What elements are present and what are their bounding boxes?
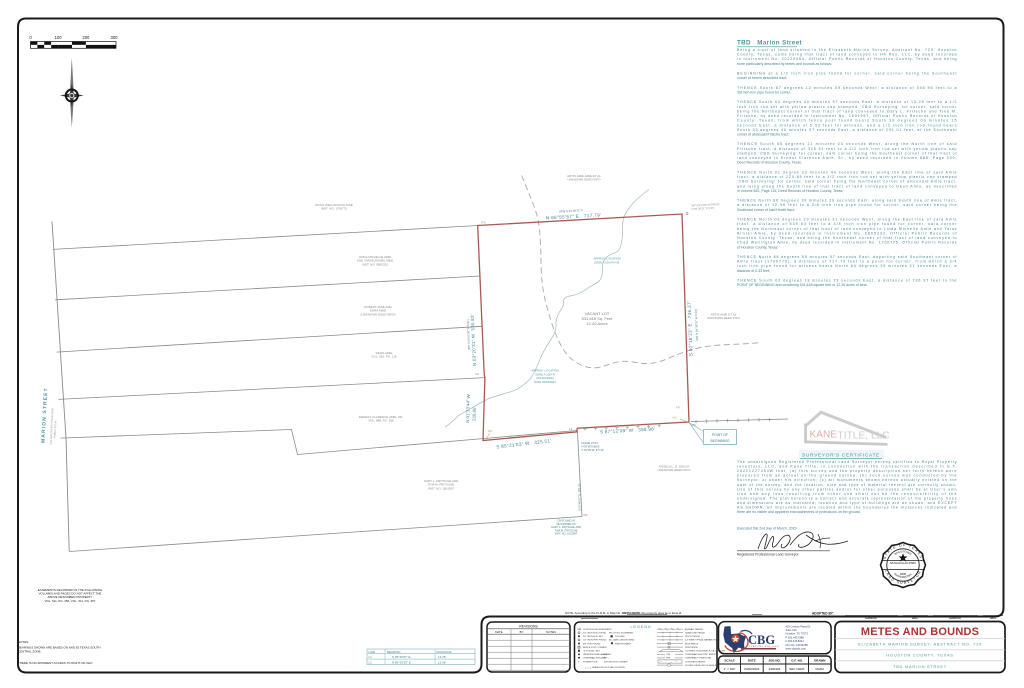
svg-text:BEGINNING at a 1/2 inch iron p: BEGINNING at a 1/2 inch iron pipe found … bbox=[737, 72, 957, 76]
svg-text:BEGINNING: BEGINNING bbox=[710, 439, 729, 443]
svg-text:NATHAN ALAN PARK: NATHAN ALAN PARK bbox=[890, 561, 917, 565]
svg-text:12.20 Acres: 12.20 Acres bbox=[586, 321, 607, 326]
svg-text:UNKNOWN DEED INFO: UNKNOWN DEED INFO bbox=[658, 468, 692, 472]
svg-text:in Volume 652, Page 116, Deed: in Volume 652, Page 116, Deed Records of… bbox=[737, 189, 843, 193]
svg-text:✕: ✕ bbox=[578, 660, 580, 663]
svg-text:A/C: A/C bbox=[488, 429, 493, 433]
svg-text:DATE: DATE bbox=[990, 617, 997, 620]
svg-text:Executed this 2nd day of March: Executed this 2nd day of March, 2023 bbox=[737, 527, 797, 531]
svg-text:OVERHEAD ELECTRIC SERVICE: OVERHEAD ELECTRIC SERVICE bbox=[685, 653, 719, 656]
svg-text:POINT OF: POINT OF bbox=[712, 433, 728, 437]
svg-text:VOL. 652, PG. 116: VOL. 652, PG. 116 bbox=[371, 355, 396, 359]
svg-text:F 281.443.8224: F 281.443.8224 bbox=[786, 639, 805, 643]
svg-text:in Instrument No. 20220664, Of: in Instrument No. 20220664, Official Pub… bbox=[737, 57, 957, 61]
svg-text:CENTRAL ZONE.: CENTRAL ZONE. bbox=[18, 650, 42, 654]
svg-text:Deed Records of Houston County: Deed Records of Houston County, Texas; bbox=[737, 161, 802, 165]
svg-text:— OHP —: — OHP — bbox=[600, 658, 611, 660]
svg-text:GRANTOR: GRANTOR bbox=[949, 617, 961, 620]
svg-text:there are no visible and appar: there are no visible and apparent encroa… bbox=[737, 510, 861, 514]
svg-text:DRAWN: DRAWN bbox=[814, 658, 825, 662]
svg-text:inch iron pipe found for witne: inch iron pipe found for witness bears N… bbox=[737, 264, 957, 268]
svg-text:UNKNOWN DEED INFO: UNKNOWN DEED INFO bbox=[568, 178, 602, 182]
svg-text:F.P.: F.P. bbox=[676, 406, 681, 410]
svg-text:AS SHOWN, all improvements are: AS SHOWN, all improvements are located w… bbox=[737, 506, 957, 510]
svg-text:County, Texas, same being that: County, Texas, same being that tract of … bbox=[737, 53, 957, 57]
svg-text:TITLE, LLC: TITLE, LLC bbox=[838, 431, 890, 442]
svg-text:THENCE South 87 degrees 12 min: THENCE South 87 degrees 12 minutes 09 se… bbox=[737, 86, 957, 90]
svg-text:N 86°39’29” E: N 86°39’29” E bbox=[392, 660, 411, 664]
svg-text:Houston, TX 77073: Houston, TX 77073 bbox=[786, 632, 809, 636]
svg-text:INST. NO. 0805332: INST. NO. 0805332 bbox=[362, 262, 388, 266]
svg-text:THENCE North 86 degrees 55 min: THENCE North 86 degrees 55 minutes 57 se… bbox=[737, 255, 957, 259]
svg-text:INST. NO. 1700775: INST. NO. 1700775 bbox=[321, 207, 347, 211]
svg-text:L1: L1 bbox=[569, 427, 573, 431]
svg-text:INST. NO. 1001997: INST. NO. 1001997 bbox=[428, 486, 454, 490]
svg-text:THENCE South 85 degrees 21 min: THENCE South 85 degrees 21 minutes 03 se… bbox=[737, 142, 957, 146]
svg-text:DISTANCE: DISTANCE bbox=[437, 650, 452, 654]
svg-text:L2: L2 bbox=[476, 372, 480, 376]
svg-text:3/8 inch iron pipe found for c: 3/8 inch iron pipe found for corner; bbox=[737, 91, 791, 95]
svg-text:L1: L1 bbox=[369, 655, 373, 659]
svg-text:www.cbgtxllc.com: www.cbgtxllc.com bbox=[786, 647, 806, 651]
svg-text:being the Northeast corner of: being the Northeast corner of that tract… bbox=[737, 109, 957, 113]
svg-text:ADOPTED BY:: ADOPTED BY: bbox=[812, 612, 834, 616]
svg-text:(UNKNOWN DEED INFO): (UNKNOWN DEED INFO) bbox=[361, 312, 396, 316]
svg-text:Fritsche tract, a distance of: Fritsche tract, a distance of 325.51 fee… bbox=[737, 147, 957, 151]
svg-text:FENCE POST CORNER: FENCE POST CORNER bbox=[583, 647, 607, 649]
svg-text:IRF: IRF bbox=[584, 513, 589, 517]
svg-text:REVISIONS: REVISIONS bbox=[519, 624, 538, 628]
svg-text:Houston County, Texas, and bei: Houston County, Texas, and being the Sou… bbox=[737, 236, 957, 240]
svg-text:THENCE North 01 degree 33 minu: THENCE North 01 degree 33 minutes 44 sec… bbox=[737, 170, 957, 174]
svg-text:FOR WITNESS: FOR WITNESS bbox=[582, 444, 600, 448]
svg-text:DATE: DATE bbox=[495, 630, 502, 634]
svg-text:L2: L2 bbox=[369, 660, 373, 664]
svg-text:VOL. 511, PG. 356, VOL. 5: VOL. 511, PG. 356, VOL. 511, PG. 357 bbox=[45, 599, 96, 603]
svg-text:JOB NO.: JOB NO. bbox=[768, 658, 781, 662]
svg-text:100: 100 bbox=[55, 35, 63, 40]
svg-text:S 03°40’57” E 291.01’: S 03°40’57” E 291.01’ bbox=[577, 483, 581, 511]
svg-text:corner of herein described tra: corner of herein described tract; bbox=[737, 76, 787, 80]
svg-text:KANE: KANE bbox=[810, 430, 838, 441]
svg-text:HOUSTON COUNTY, TEXAS: HOUSTON COUNTY, TEXAS bbox=[886, 653, 953, 658]
svg-text:FIRE HYDRANT: FIRE HYDRANT bbox=[615, 642, 632, 645]
svg-text:NOTES:: NOTES: bbox=[18, 640, 29, 644]
svg-text:PIPE FENCE: PIPE FENCE bbox=[685, 647, 698, 649]
svg-text:△ △ △ GRAVEL/ROCK ROAD OR DR: △ △ △ GRAVEL/ROCK ROAD OR DRIVE bbox=[585, 666, 625, 669]
svg-text:OVERHEAD POWER LINE: OVERHEAD POWER LINE bbox=[685, 657, 712, 660]
svg-text:Being a tract of land situated: Being a tract of land situated in the El… bbox=[737, 48, 957, 52]
svg-text:corner of aforesaid Fritsche t: corner of aforesaid Fritsche tract; bbox=[737, 133, 789, 137]
svg-text:13.25’: 13.25’ bbox=[438, 655, 447, 659]
svg-text:‘CBG Surveying’ for corner, sa: ‘CBG Surveying’ for corner, said corner … bbox=[737, 180, 956, 184]
svg-text:1/2” IRON ROD FOUND: 1/2” IRON ROD FOUND bbox=[583, 633, 607, 635]
svg-text:A/C: A/C bbox=[673, 416, 678, 420]
svg-text:and 0025 is within the 10: and 0025 is within the 100 year flood zo… bbox=[575, 615, 654, 619]
svg-text:CBG: CBG bbox=[748, 633, 775, 647]
svg-text:Amie tract (1700775), a distan: Amie tract (1700775), a distance of 717.… bbox=[737, 260, 957, 264]
svg-text:4605: 4605 bbox=[900, 572, 907, 576]
svg-text:12.96’: 12.96’ bbox=[438, 660, 447, 664]
svg-text:POWER POLE: POWER POLE bbox=[583, 661, 598, 663]
svg-text:“X” FOUND / SET: “X” FOUND / SET bbox=[583, 651, 601, 653]
svg-text:inch iron rod set with yellow: inch iron rod set with yellow plastic ca… bbox=[737, 105, 957, 109]
svg-text:of Houston County, Texas;: of Houston County, Texas; bbox=[737, 245, 778, 249]
svg-text:WOOD FENCE: WOOD FENCE bbox=[685, 636, 700, 638]
svg-text:GRANTOR: GRANTOR bbox=[865, 617, 877, 620]
svg-text:CM: CM bbox=[578, 629, 582, 631]
svg-text:DOUBLE SIDED WOOD FENCE: DOUBLE SIDED WOOD FENCE bbox=[685, 665, 717, 667]
svg-text:Surveyor, or under his directi: Surveyor, or under his direction; (c) al… bbox=[737, 478, 957, 482]
svg-text:P 281.443.6388: P 281.443.6388 bbox=[786, 635, 805, 639]
svg-text:PE = POOL EQUIPMENT: PE = POOL EQUIPMENT bbox=[609, 633, 634, 635]
svg-text:more particularly described by: more particularly described by metes and… bbox=[737, 62, 832, 66]
svg-text:The undersigned Registered Pro: The undersigned Registered Professional … bbox=[737, 460, 957, 464]
svg-text:DRAFTING SERVICES: DRAFTING SERVICES bbox=[749, 645, 779, 648]
svg-text:THENCE South 02 degrees 18 min: THENCE South 02 degrees 18 minutes 23 se… bbox=[737, 279, 957, 283]
svg-text:300: 300 bbox=[111, 35, 119, 40]
svg-text:COLUMN: COLUMN bbox=[615, 636, 625, 638]
svg-text:Firm No. 10194280: Firm No. 10194280 bbox=[786, 643, 809, 647]
svg-text:ASPHALT PAVING: ASPHALT PAVING bbox=[685, 628, 703, 631]
svg-text:THENCE South 03 degrees 40 min: THENCE South 03 degrees 40 minutes 57 se… bbox=[737, 100, 957, 104]
svg-text:date of the survey, and the lo: date of the survey, and the location, si… bbox=[737, 483, 957, 487]
svg-text:5-T WIRE TYPICAL BARBED WIRE: 5-T WIRE TYPICAL BARBED WIRE bbox=[685, 639, 720, 642]
svg-text:1/2” IRON PIPE FOUND: 1/2” IRON PIPE FOUND bbox=[583, 640, 607, 642]
svg-text:CONTROLLING MONUMENT: CONTROLLING MONUMENT bbox=[583, 629, 612, 631]
svg-text:undersigned. The plat hereon i: undersigned. The plat hereon is a correc… bbox=[737, 496, 957, 500]
svg-text:2300426: 2300426 bbox=[769, 667, 781, 671]
svg-text:IRON FENCE: IRON FENCE bbox=[685, 643, 699, 645]
svg-text:land conveyed to Ernest Claren: land conveyed to Ernest Clarence Amie, S… bbox=[737, 156, 957, 160]
svg-text:SURVEYOR’S CERTIFICATE: SURVEYOR’S CERTIFICATE bbox=[802, 453, 880, 459]
svg-text:— GAS —: — GAS — bbox=[600, 653, 611, 656]
svg-text:ZONE A 100YR H.B.: ZONE A 100YR H.B. bbox=[594, 260, 620, 264]
svg-text:THERE IS NO APPARENT ACCES: THERE IS NO APPARENT ACCESS TO RIGHT-OF-… bbox=[18, 661, 93, 665]
svg-text:S 03°40’57” E: S 03°40’57” E bbox=[392, 655, 411, 659]
svg-text:BY: BY bbox=[520, 630, 524, 634]
svg-text:Chad Wellington Amie, by deed: Chad Wellington Amie, by deed recorded i… bbox=[737, 241, 957, 245]
svg-text:THENCE North 86 degrees 39 min: THENCE North 86 degrees 39 minutes 29 se… bbox=[737, 199, 957, 203]
svg-text:3/8” ROD FOUND: 3/8” ROD FOUND bbox=[583, 643, 601, 645]
svg-text:SCALE: SCALE bbox=[724, 658, 734, 662]
svg-text:THENCE North 03 degrees 20 min: THENCE North 03 degrees 20 minutes 31 se… bbox=[737, 218, 957, 222]
svg-text:tract, a distance of 535.83 fe: tract, a distance of 535.83 feet to a 3/… bbox=[737, 222, 957, 226]
svg-text:1/2” IRON ROD SET: 1/2” IRON ROD SET bbox=[583, 636, 603, 638]
svg-text:DATE: DATE bbox=[748, 658, 756, 662]
svg-text:TBD MARION STREET: TBD MARION STREET bbox=[893, 664, 947, 669]
svg-text:a distance of 12.96 feet to a: a distance of 12.96 feet to a 3/8 inch i… bbox=[737, 203, 957, 207]
svg-text:SEC CERT.: SEC CERT. bbox=[789, 667, 805, 671]
svg-text:Use of this survey by any othe: Use of this survey by any other parties … bbox=[737, 487, 957, 491]
svg-text:ELIZABETH MARION SURVEY, AB: ELIZABETH MARION SURVEY, ABSTRACT NO. 72… bbox=[858, 642, 982, 647]
svg-text:419 Century Plaza Dr.: 419 Century Plaza Dr. bbox=[786, 624, 812, 628]
svg-text:DATE: DATE bbox=[912, 617, 919, 620]
svg-text:Southeast corner of said Heath: Southeast corner of said Heath tract; bbox=[737, 208, 795, 212]
svg-text:TBD Marion Street: TBD Marion Street bbox=[737, 40, 802, 47]
svg-text:CHAIN LINK FENCE: CHAIN LINK FENCE bbox=[685, 632, 705, 635]
svg-text:being the Northeast corner of: being the Northeast corner of that tract… bbox=[737, 227, 957, 231]
svg-text:200: 200 bbox=[82, 35, 90, 40]
svg-text:20221227454W that, (a) this su: 20221227454W that, (a) this survey and t… bbox=[737, 469, 957, 473]
svg-text:B-POINT FOR CORNER: B-POINT FOR CORNER bbox=[604, 661, 628, 663]
svg-text:Arniel Amie, by deed recorded: Arniel Amie, by deed recorded in Instrum… bbox=[737, 231, 957, 235]
svg-text:distance of 0.33 feet;: distance of 0.33 feet; bbox=[737, 269, 770, 273]
svg-text:DATE 04/04/2011: DATE 04/04/2011 bbox=[534, 380, 556, 384]
svg-text:South 03 degrees 40 minutes 57: South 03 degrees 40 minutes 57 seconds E… bbox=[737, 128, 957, 132]
svg-text:Registered Professional Land: Registered Professional Land Surveyor bbox=[737, 553, 800, 557]
svg-text:N 01°33’44” W: N 01°33’44” W bbox=[465, 393, 471, 423]
svg-text:POINT OF BEGINNING and contain: POINT OF BEGINNING and containing 531,61… bbox=[737, 283, 867, 287]
svg-text:LINE: LINE bbox=[369, 650, 376, 654]
svg-text:MARA: MARA bbox=[815, 667, 824, 671]
svg-text:IPS: IPS bbox=[482, 221, 486, 225]
svg-text:INST. NO. 1001997: INST. NO. 1001997 bbox=[555, 532, 578, 536]
svg-text:S 39°09’15” E 5.33’: S 39°09’15” E 5.33’ bbox=[582, 448, 605, 452]
svg-text:NOTES: NOTES bbox=[546, 630, 556, 634]
svg-text:AC = AIR CONDITIONING: AC = AIR CONDITIONING bbox=[609, 639, 635, 642]
svg-text:stamped ‘CBG Surveying’ for co: stamped ‘CBG Surveying’ for corner, said… bbox=[737, 152, 956, 156]
svg-text:prepared from an actual on-the: prepared from an actual on-the-ground su… bbox=[737, 474, 957, 478]
svg-text:Investors, LLC, and Kane Title: Investors, LLC, and Kane Title, in conne… bbox=[737, 465, 956, 469]
svg-text:BEARING: BEARING bbox=[387, 650, 401, 654]
svg-text:FENCE POST: FENCE POST bbox=[582, 441, 599, 445]
svg-text:seconds East, a distance of 5.: seconds East, a distance of 5.33 feet fo… bbox=[737, 123, 957, 127]
svg-text:220.85’: 220.85’ bbox=[472, 406, 477, 421]
svg-text:CONCRETE PAVING: CONCRETE PAVING bbox=[685, 660, 706, 663]
svg-text:UNKNOWN DEED INFO: UNKNOWN DEED INFO bbox=[707, 316, 741, 320]
svg-text:METES AND BOUNDS: METES AND BOUNDS bbox=[861, 626, 979, 638]
svg-text:Suite 210: Suite 210 bbox=[786, 628, 798, 632]
svg-text:LEGEND: LEGEND bbox=[630, 624, 651, 629]
svg-text:and lying along the South line: and lying along the South line of that t… bbox=[737, 184, 957, 188]
svg-text:1” = 100’: 1” = 100’ bbox=[724, 667, 736, 671]
svg-text:03/02/2023: 03/02/2023 bbox=[744, 667, 759, 671]
svg-text:tract, a distance of 220.85 fe: tract, a distance of 220.85 feet to a 1/… bbox=[737, 175, 957, 179]
svg-text:G.F. NO.: G.F. NO. bbox=[791, 658, 803, 662]
svg-text:and dimensions are as indicate: and dimensions are as indicated; locatio… bbox=[737, 501, 957, 505]
svg-text:Fritsche, by deed recorded in: Fritsche, by deed recorded in Instrument… bbox=[737, 114, 957, 118]
svg-text:VOL. 888, PG. 390: VOL. 888, PG. 390 bbox=[368, 419, 394, 423]
